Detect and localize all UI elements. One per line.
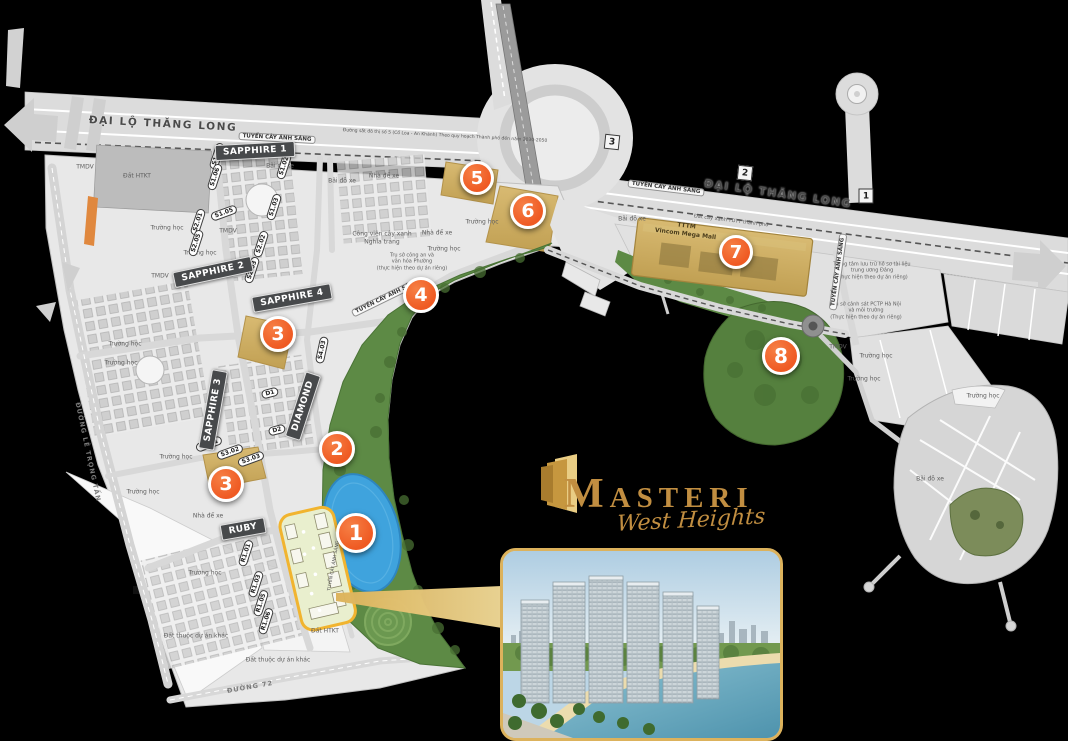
map-marker[interactable]: 1 <box>336 513 376 553</box>
area-label: TMDV <box>151 272 168 280</box>
area-label: Trường học <box>847 375 880 383</box>
map-marker[interactable]: 3 <box>208 466 244 502</box>
project-rendering-inset <box>500 548 783 741</box>
route-number-badge: 2 <box>737 165 753 181</box>
area-label: Trường học <box>159 453 192 461</box>
area-label: Trụ sở cảnh sát PCTP Hà Nội và môi trườn… <box>830 302 902 321</box>
area-label: Trường học <box>188 569 221 577</box>
area-label: Đất thuộc dự án khác <box>246 656 311 664</box>
area-label: Trường học <box>465 218 498 226</box>
area-label: Trường học <box>108 340 141 348</box>
masteri-logo: MASTERI West Heights <box>536 448 781 548</box>
masterplan-map: Đất HTKTTMDVTMDVTMDVBãi đỗ xeBãi đỗ xeNh… <box>0 0 1068 741</box>
area-label: Trường học <box>104 359 137 367</box>
map-marker[interactable]: 6 <box>510 193 546 229</box>
map-marker[interactable]: 5 <box>460 161 494 195</box>
utility-parcel <box>93 145 211 213</box>
map-marker[interactable]: 2 <box>319 431 355 467</box>
area-label: Trường học <box>126 488 159 496</box>
area-label: Bãi đỗ xe <box>328 177 356 185</box>
area-label: TMDV <box>829 343 846 351</box>
area-label: Nhà để xe <box>422 229 452 237</box>
area-label: Trường học <box>966 392 999 400</box>
area-label: Đất HTKT <box>311 627 339 635</box>
area-label: Trường học <box>859 352 892 360</box>
area-label: Nhà để xe <box>369 172 399 180</box>
map-marker[interactable]: 8 <box>762 337 800 375</box>
area-label: Bãi đỗ xe <box>618 215 646 223</box>
area-label: TMDV <box>76 163 93 171</box>
area-label: Trường học <box>427 245 460 253</box>
area-label: Công viên cây xanh Nghĩa trang <box>352 231 411 246</box>
area-label: Trụ sở công an và văn hóa Phường (thực h… <box>377 253 447 272</box>
cul-de-sac-roundabout <box>836 73 878 203</box>
area-label: Bãi đỗ xe <box>916 475 944 483</box>
route-number-badge: 3 <box>604 134 620 150</box>
area-label: TMDV <box>219 227 236 235</box>
area-label: Đất thuộc dự án khác <box>164 632 229 640</box>
pond-garden <box>950 488 1023 556</box>
rendering-scene <box>503 551 780 738</box>
area-label: Trường học <box>150 224 183 232</box>
area-label: Trung tâm lưu trữ hồ sơ tài liệu trung ư… <box>833 262 910 281</box>
map-marker[interactable]: 3 <box>260 316 296 352</box>
map-marker[interactable]: 4 <box>403 277 439 313</box>
route-number-badge: 1 <box>859 189 874 204</box>
road-arrow-icon <box>36 302 56 322</box>
area-label: Đất HTKT <box>123 172 151 180</box>
map-marker[interactable]: 7 <box>719 235 753 269</box>
area-label: Nhà để xe <box>193 512 223 520</box>
